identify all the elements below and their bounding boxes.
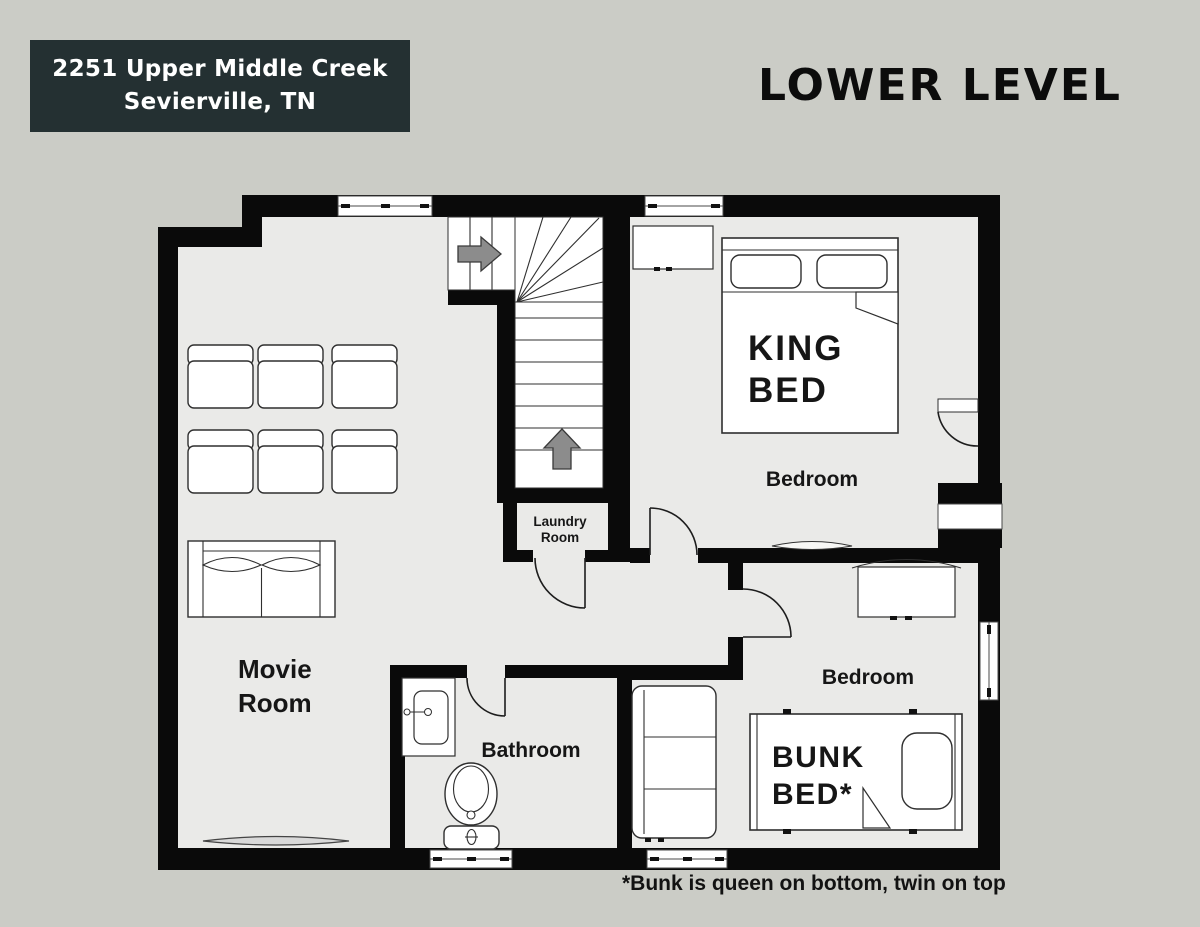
floor-plan-drawing: Movie Room Laundry Room Bathroom Bedroom… [0, 0, 1200, 927]
bunk-footnote: *Bunk is queen on bottom, twin on top [622, 872, 1006, 896]
window-bottom-bathroom [430, 850, 512, 868]
theater-seat [332, 430, 397, 493]
window-top-king-bedroom [645, 196, 723, 216]
bunk-bed-label-line1: BUNK [772, 741, 865, 774]
movie-room-label-line1: Movie [238, 654, 312, 684]
bunk-bed-label-line2: BED* [772, 778, 853, 811]
shelf-unit [632, 686, 716, 842]
theater-seat [332, 345, 397, 408]
king-bed-label-line2: BED [748, 371, 828, 410]
theater-seat [258, 430, 323, 493]
couch [188, 541, 335, 617]
nightstand-foot [666, 267, 672, 271]
king-bedroom-label: Bedroom [766, 468, 858, 491]
window-right-bunk-bedroom [980, 622, 998, 700]
laundry-room-label-line1: Laundry [533, 514, 587, 529]
window-bottom-bunk-bedroom [647, 850, 727, 868]
theater-seat [188, 345, 253, 408]
nightstand-foot [654, 267, 660, 271]
window-top-movie-room [338, 196, 432, 216]
bathroom-label: Bathroom [481, 739, 580, 762]
king-bed-label-line1: KING [748, 329, 844, 368]
wall-niche [938, 504, 1002, 529]
laundry-room-label-line2: Room [541, 530, 579, 545]
theater-seat [188, 430, 253, 493]
floor-plan-page: 2251 Upper Middle Creek Sevierville, TN … [0, 0, 1200, 927]
theater-seat [258, 345, 323, 408]
movie-room-label-line2: Room [238, 688, 312, 718]
nightstand [633, 226, 713, 269]
toilet [444, 763, 499, 849]
dresser [852, 560, 961, 621]
bunk-bedroom-label: Bedroom [822, 666, 914, 689]
sink-vanity [402, 678, 455, 756]
